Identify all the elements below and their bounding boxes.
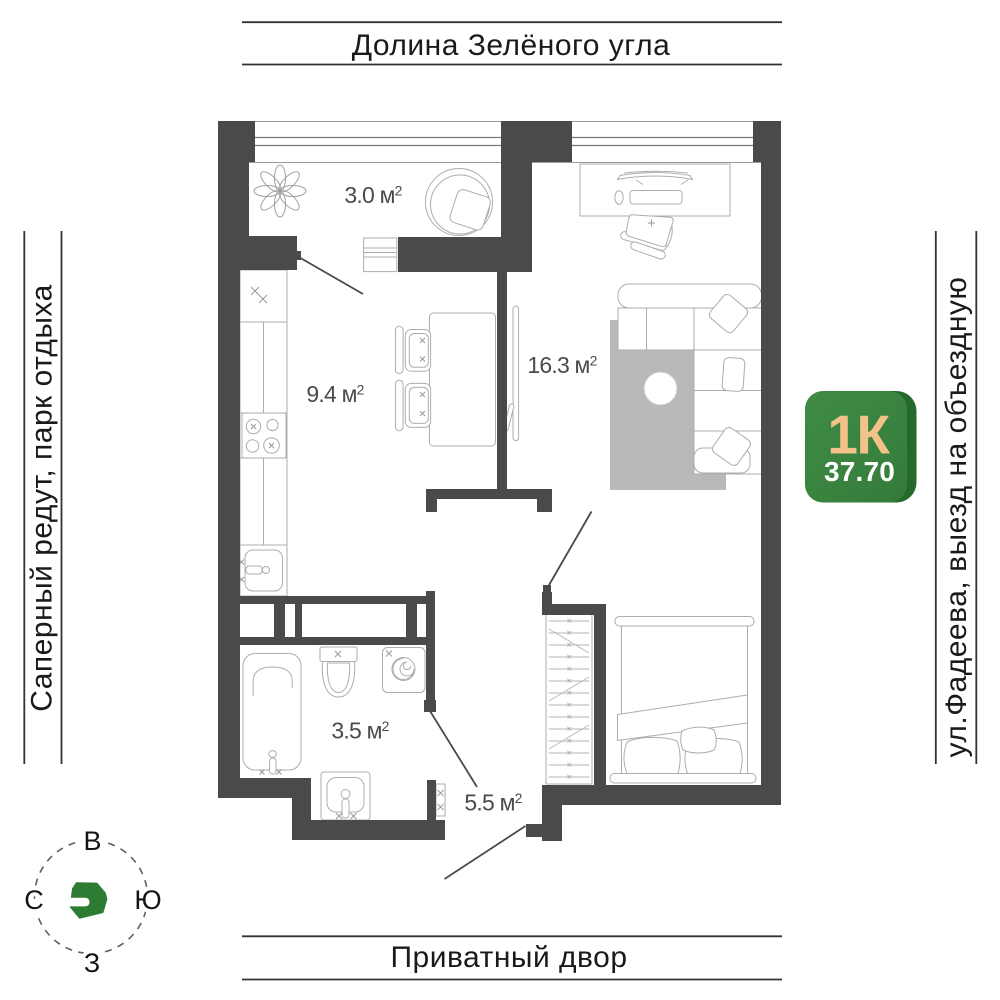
svg-text:В: В: [83, 826, 101, 856]
svg-text:5.5 м2: 5.5 м2: [464, 790, 522, 816]
svg-text:Ю: Ю: [134, 885, 161, 915]
svg-text:9.4 м2: 9.4 м2: [306, 381, 364, 407]
svg-text:3.0 м2: 3.0 м2: [344, 182, 402, 208]
svg-text:Долина Зелёного угла: Долина Зелёного угла: [352, 29, 671, 62]
svg-text:С: С: [24, 885, 44, 915]
svg-text:ул.Фадеева, выезд на объездную: ул.Фадеева, выезд на объездную: [940, 277, 973, 758]
svg-text:37.70: 37.70: [824, 456, 895, 487]
svg-text:Саперный редут, парк отдыха: Саперный редут, парк отдыха: [26, 284, 59, 712]
svg-text:16.3 м2: 16.3 м2: [527, 352, 597, 378]
svg-text:З: З: [84, 948, 100, 978]
svg-text:3.5 м2: 3.5 м2: [331, 718, 389, 744]
svg-text:Приватный двор: Приватный двор: [390, 941, 627, 974]
